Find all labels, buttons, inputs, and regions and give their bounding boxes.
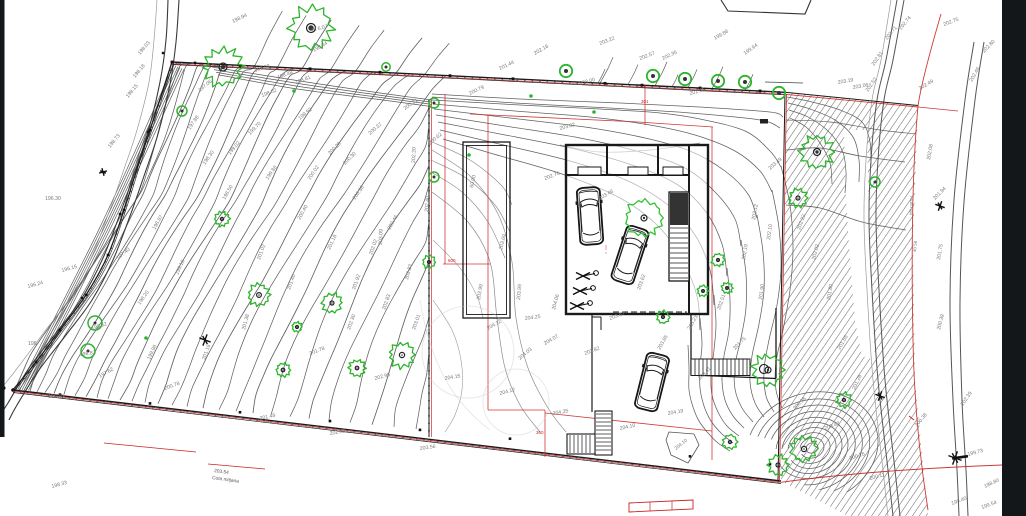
- svg-text:40 58: 40 58: [912, 240, 918, 252]
- svg-text:360: 360: [536, 430, 544, 435]
- svg-text:196.30: 196.30: [48, 394, 64, 400]
- svg-text:600: 600: [448, 258, 456, 263]
- svg-text:202.20: 202.20: [411, 147, 418, 163]
- svg-text:196.: 196.: [28, 341, 38, 347]
- svg-text:els carrer: els carrer: [908, 195, 914, 215]
- svg-text:203.09: 203.09: [378, 229, 385, 245]
- svg-text:301: 301: [641, 99, 649, 104]
- svg-text:196.30: 196.30: [45, 196, 61, 202]
